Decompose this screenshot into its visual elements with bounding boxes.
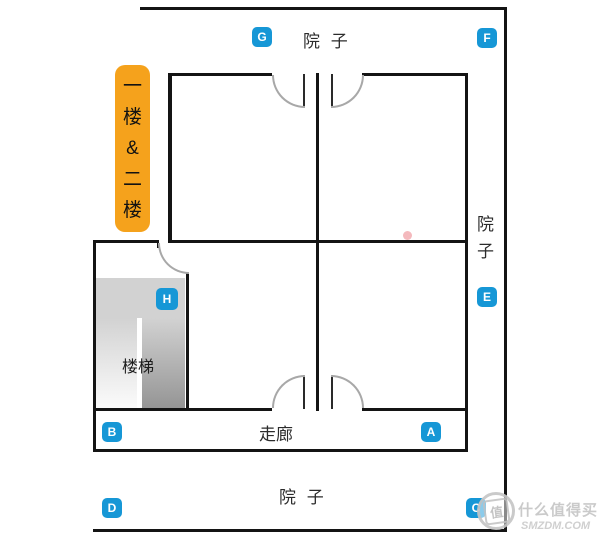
marker-a[interactable]: A xyxy=(421,422,441,442)
marker-h[interactable]: H xyxy=(156,288,178,310)
label-corridor: 走廊 xyxy=(259,420,293,445)
wall-top-left-segment xyxy=(168,73,272,76)
label-yard-bottom: 院 子 xyxy=(279,483,327,508)
door-arc-top-left-icon xyxy=(272,75,305,108)
door-arc-bottom-right-icon xyxy=(331,375,364,408)
pink-dot-marker xyxy=(403,231,412,240)
boundary-top xyxy=(140,7,507,10)
door-arc-top-right-icon xyxy=(331,75,364,108)
wall-bottom-left-segment xyxy=(93,408,272,411)
floor-tag-label: 一 楼 & 二 楼 xyxy=(123,71,142,226)
marker-f[interactable]: F xyxy=(477,28,497,48)
watermark-site-domain: SMZDM.COM xyxy=(521,520,590,532)
wall-stairwell-right xyxy=(186,272,189,411)
wall-building-right xyxy=(465,73,468,452)
floor-plan-canvas: 院 子 院 子 院 子 走廊 楼梯 一 楼 & 二 楼 G F E H A B … xyxy=(0,0,600,540)
wall-middle-right-segment xyxy=(168,240,468,243)
label-yard-right: 院 子 xyxy=(477,211,494,265)
label-stairs: 楼梯 xyxy=(122,353,154,377)
marker-g[interactable]: G xyxy=(252,27,272,47)
marker-d[interactable]: D xyxy=(102,498,122,518)
door-arc-stairwell-icon xyxy=(158,243,189,274)
wall-building-left xyxy=(168,73,172,243)
wall-bottom-right-segment xyxy=(362,408,468,411)
wall-corridor-bottom xyxy=(93,449,468,452)
door-arc-bottom-left-icon xyxy=(272,375,305,408)
wall-middle-left-segment xyxy=(93,240,159,243)
wall-top-right-segment xyxy=(362,73,468,76)
marker-b[interactable]: B xyxy=(102,422,122,442)
watermark-site-name: 什么值得买 xyxy=(518,499,598,520)
label-yard-top: 院 子 xyxy=(303,27,351,52)
marker-e[interactable]: E xyxy=(477,287,497,307)
marker-c[interactable]: C xyxy=(466,498,486,518)
boundary-bottom xyxy=(93,529,507,532)
floor-tag: 一 楼 & 二 楼 xyxy=(115,65,150,232)
boundary-right xyxy=(504,7,507,532)
